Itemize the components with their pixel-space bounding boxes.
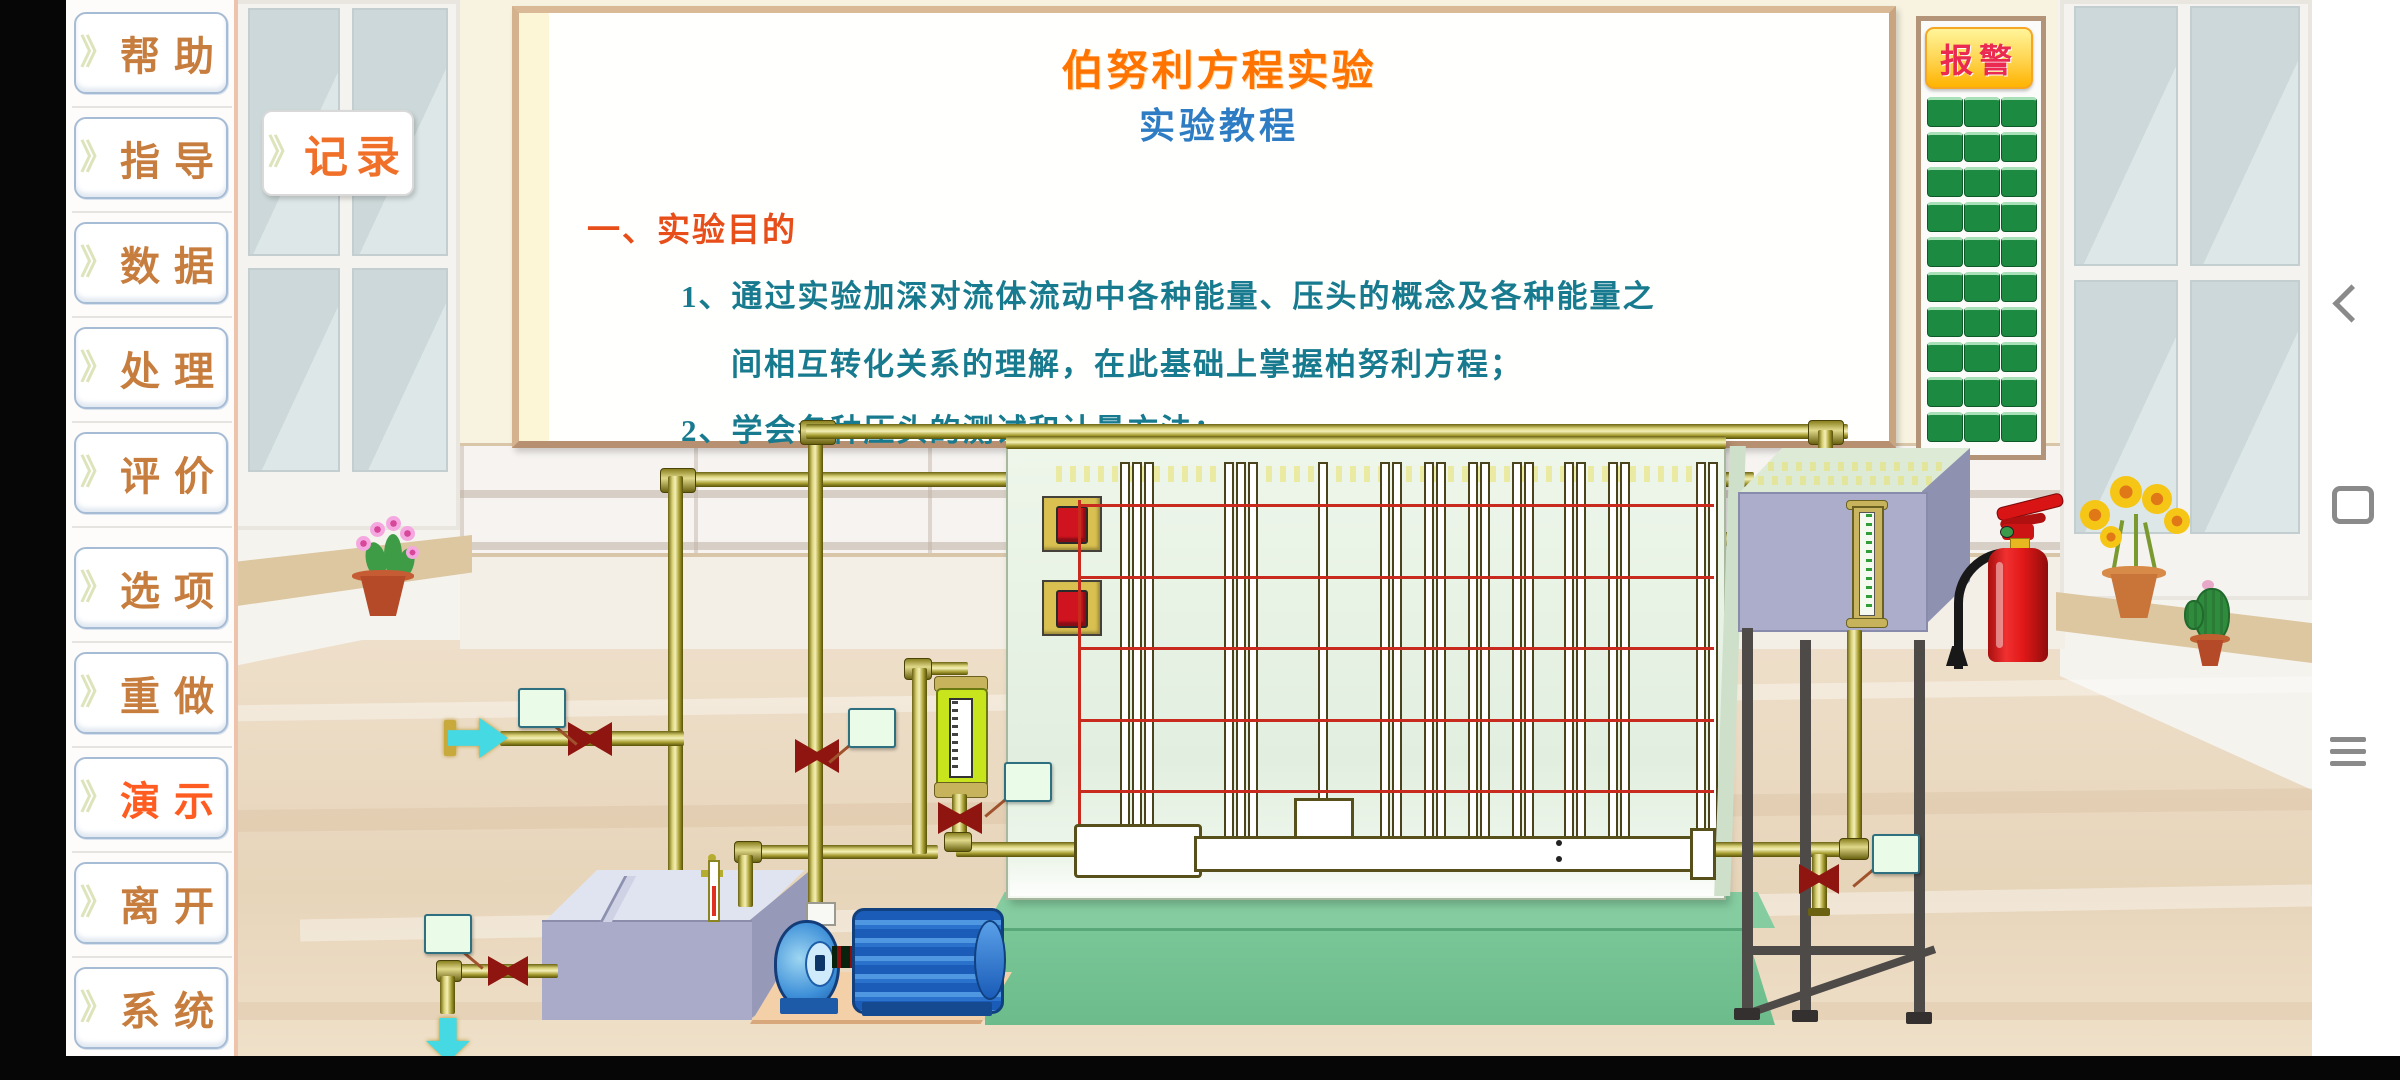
manometer-tube bbox=[1512, 462, 1522, 844]
whiteboard-margin bbox=[519, 13, 549, 441]
whiteboard: 伯努利方程实验 实验教程 一、实验目的 1、通过实验加深对流体流动中各种能量、压… bbox=[512, 6, 1896, 448]
manometer-tube bbox=[1120, 462, 1130, 844]
manometer-tube bbox=[1576, 462, 1586, 844]
menu-icon[interactable] bbox=[2330, 730, 2366, 773]
manometer-tube bbox=[1392, 462, 1402, 844]
chevron-icon: 》 bbox=[80, 141, 114, 175]
experiment-title: 伯努利方程实验 bbox=[549, 37, 1889, 98]
stand-leg bbox=[1742, 628, 1753, 1016]
manometer-tube bbox=[1436, 462, 1446, 844]
alarm-grid-button[interactable] bbox=[2001, 377, 2037, 407]
chevron-icon: 》 bbox=[80, 456, 114, 490]
objective-line: 1、通过实验加深对流体流动中各种能量、压头的概念及各种能量之 bbox=[681, 271, 1656, 316]
tooltip-marker[interactable] bbox=[1872, 834, 1920, 874]
scale-line bbox=[1078, 790, 1714, 793]
alarm-grid-button[interactable] bbox=[2001, 132, 2037, 162]
stand-foot bbox=[1792, 1010, 1818, 1022]
motor-feet bbox=[862, 1002, 992, 1016]
return-dip-pipe bbox=[738, 855, 753, 907]
left-window bbox=[234, 0, 460, 530]
sidebar-item-label: 离开 bbox=[120, 874, 228, 932]
test-section-outlet-pipe bbox=[1706, 842, 1856, 857]
sidebar-item-label: 数据 bbox=[120, 234, 228, 292]
rotameter-loop-pipe bbox=[912, 668, 927, 854]
alarm-grid-button[interactable] bbox=[1927, 412, 1963, 442]
window-pane bbox=[2190, 6, 2300, 266]
manometer-tube bbox=[1480, 462, 1490, 844]
pedestal-base bbox=[985, 928, 1775, 1025]
sidebar-item-label: 重做 bbox=[120, 664, 228, 722]
sidebar-item-data[interactable]: 》数据 bbox=[74, 222, 228, 304]
alarm-grid-button[interactable] bbox=[1927, 97, 1963, 127]
stand-leg bbox=[1914, 640, 1925, 1020]
scale-line bbox=[1078, 719, 1714, 722]
pump-foot bbox=[780, 998, 838, 1014]
sidebar-item-label: 系统 bbox=[120, 979, 228, 1037]
drain-down-pipe bbox=[440, 976, 455, 1014]
rotameter bbox=[936, 688, 988, 788]
sidebar-item-help[interactable]: 》帮助 bbox=[74, 12, 228, 94]
flow-in-arrow[interactable] bbox=[444, 716, 508, 760]
chevron-icon: 》 bbox=[80, 351, 114, 385]
home-icon[interactable] bbox=[2332, 486, 2374, 524]
manometer-tube bbox=[1318, 462, 1328, 844]
screen-edge-bottom bbox=[0, 1056, 2400, 1080]
tooltip-marker[interactable] bbox=[424, 914, 472, 954]
stand-crossbar bbox=[1742, 946, 1925, 955]
objective-line: 间相互转化关系的理解，在此基础上掌握柏努利方程； bbox=[731, 339, 1523, 384]
overflow-riser-pipe bbox=[668, 476, 683, 896]
alarm-grid-button[interactable] bbox=[1964, 167, 2000, 197]
manometer-tube bbox=[1248, 462, 1258, 844]
screen-edge-left bbox=[0, 0, 66, 1080]
chevron-icon: 》 bbox=[80, 571, 114, 605]
alarm-grid-button[interactable] bbox=[2001, 202, 2037, 232]
pipe-elbow bbox=[1839, 838, 1869, 860]
venturi-tube bbox=[1194, 836, 1714, 872]
scale-line bbox=[1078, 647, 1714, 650]
alarm-grid-button[interactable] bbox=[1964, 237, 2000, 267]
chevron-icon: 》 bbox=[268, 136, 302, 170]
manometer-tube bbox=[1468, 462, 1478, 844]
pipe-elbow bbox=[944, 832, 972, 852]
sidebar: 》帮助》指导》数据》处理》评价》选项》重做》演示》离开》系统 bbox=[66, 0, 238, 1056]
app-screen: 伯努利方程实验 实验教程 一、实验目的 1、通过实验加深对流体流动中各种能量、压… bbox=[0, 0, 2400, 1080]
stand-leg bbox=[1800, 640, 1811, 1018]
extinguisher-gauge bbox=[2000, 526, 2014, 538]
drain-spout bbox=[1808, 908, 1830, 916]
chevron-icon: 》 bbox=[80, 36, 114, 70]
sidebar-item-label: 帮助 bbox=[120, 24, 228, 82]
window-pane bbox=[352, 268, 448, 472]
venturi-tap bbox=[1556, 840, 1562, 846]
sidebar-item-process[interactable]: 》处理 bbox=[74, 327, 228, 409]
alarm-grid-button[interactable] bbox=[2001, 412, 2037, 442]
alarm-grid-button[interactable] bbox=[1927, 307, 1963, 337]
sidebar-item-label: 处理 bbox=[120, 339, 228, 397]
alarm-grid-button[interactable] bbox=[1927, 377, 1963, 407]
alarm-grid-button[interactable] bbox=[1964, 307, 2000, 337]
stand-foot bbox=[1734, 1008, 1760, 1020]
back-icon[interactable] bbox=[2332, 284, 2370, 322]
thermometer bbox=[700, 852, 726, 922]
alarm-grid-button[interactable] bbox=[2001, 97, 2037, 127]
sidebar-item-system[interactable]: 》系统 bbox=[74, 967, 228, 1049]
sidebar-item-label: 评价 bbox=[120, 444, 228, 502]
yellow-flower-pot bbox=[2076, 470, 2196, 620]
manometer-tube bbox=[1696, 462, 1706, 844]
venturi-chamber bbox=[1074, 824, 1202, 878]
sidebar-item-label: 演示 bbox=[120, 769, 228, 827]
tooltip-marker[interactable] bbox=[518, 688, 566, 728]
alarm-grid-button[interactable] bbox=[1927, 237, 1963, 267]
stand-foot bbox=[1906, 1012, 1932, 1024]
alarm-grid-button[interactable] bbox=[1964, 97, 2000, 127]
manometer-tube bbox=[1708, 462, 1718, 844]
manometer-tube bbox=[1524, 462, 1534, 844]
scale-line bbox=[1078, 504, 1714, 507]
alarm-panel: 报警 bbox=[1916, 16, 2046, 460]
venturi-tap bbox=[1556, 856, 1562, 862]
sidebar-item-redo[interactable]: 》重做 bbox=[74, 652, 228, 734]
pump-discharge-pipe bbox=[808, 430, 823, 918]
manometer-tube bbox=[1608, 462, 1618, 844]
scale-line bbox=[1078, 576, 1714, 579]
gauge-cap bbox=[1846, 618, 1888, 628]
record-label: 记录 bbox=[304, 121, 408, 185]
alarm-grid bbox=[1921, 21, 2041, 455]
tooltip-marker[interactable] bbox=[848, 708, 896, 748]
record-button[interactable]: 》 记录 bbox=[262, 110, 414, 196]
level-gauge bbox=[1852, 506, 1884, 624]
elevated-tank bbox=[1738, 492, 1928, 632]
centrifugal-pump bbox=[774, 920, 840, 1010]
cactus-pot bbox=[2182, 578, 2234, 668]
sidebar-item-demo[interactable]: 》演示 bbox=[74, 757, 228, 839]
sidebar-item-leave[interactable]: 》离开 bbox=[74, 862, 228, 944]
alarm-grid-button[interactable] bbox=[1964, 342, 2000, 372]
window-pane bbox=[2190, 280, 2300, 534]
section-heading: 一、实验目的 bbox=[587, 203, 797, 251]
sidebar-item-label: 选项 bbox=[120, 559, 228, 617]
alarm-grid-button[interactable] bbox=[1927, 342, 1963, 372]
alarm-grid-button[interactable] bbox=[1927, 132, 1963, 162]
shaft-coupling bbox=[832, 946, 852, 968]
chevron-icon: 》 bbox=[80, 781, 114, 815]
fire-extinguisher bbox=[1940, 490, 2070, 670]
system-nav-bar bbox=[2312, 0, 2400, 1056]
pink-flower-pot bbox=[344, 508, 424, 620]
water-surface-hatch bbox=[1758, 476, 1950, 485]
chevron-icon: 》 bbox=[80, 676, 114, 710]
tooltip-marker[interactable] bbox=[1004, 762, 1052, 802]
alarm-grid-button[interactable] bbox=[1927, 272, 1963, 302]
alarm-grid-button[interactable] bbox=[1964, 377, 2000, 407]
return-pipe bbox=[742, 845, 938, 859]
alarm-grid-button[interactable] bbox=[1964, 132, 2000, 162]
manometer-tube bbox=[1564, 462, 1574, 844]
water-surface-hatch bbox=[1768, 462, 1948, 471]
alarm-grid-button[interactable] bbox=[2001, 342, 2037, 372]
venturi-end-flange bbox=[1690, 828, 1716, 880]
manometer-tube bbox=[1380, 462, 1390, 844]
manometer-tube bbox=[1144, 462, 1154, 844]
chevron-icon: 》 bbox=[80, 991, 114, 1025]
sump-tank bbox=[542, 920, 752, 1020]
chevron-icon: 》 bbox=[80, 246, 114, 280]
alarm-grid-button[interactable] bbox=[1927, 167, 1963, 197]
alarm-grid-button[interactable] bbox=[1927, 202, 1963, 232]
manometer-tube bbox=[1224, 462, 1234, 844]
sidebar-item-guide[interactable]: 》指导 bbox=[74, 117, 228, 199]
alarm-grid-button[interactable] bbox=[1964, 202, 2000, 232]
alarm-grid-button[interactable] bbox=[2001, 167, 2037, 197]
window-pane bbox=[248, 268, 340, 472]
chevron-icon: 》 bbox=[80, 886, 114, 920]
alarm-grid-button[interactable] bbox=[1964, 412, 2000, 442]
window-pane bbox=[2074, 6, 2178, 266]
motor-endcap bbox=[974, 920, 1006, 1000]
alarm-grid-button[interactable] bbox=[1964, 272, 2000, 302]
sidebar-item-evaluate[interactable]: 》评价 bbox=[74, 432, 228, 514]
manometer-tube bbox=[1132, 462, 1142, 844]
experiment-subtitle: 实验教程 bbox=[549, 97, 1889, 149]
alarm-grid-button[interactable] bbox=[2001, 237, 2037, 267]
sidebar-item-options[interactable]: 》选项 bbox=[74, 547, 228, 629]
elevated-tank-outlet-pipe bbox=[1847, 630, 1862, 856]
manometer-tube bbox=[1424, 462, 1434, 844]
manometer-tube bbox=[1236, 462, 1246, 844]
sidebar-item-label: 指导 bbox=[120, 129, 228, 187]
alarm-grid-button[interactable] bbox=[2001, 272, 2037, 302]
manometer-tube bbox=[1620, 462, 1630, 844]
test-section-feed-pipe bbox=[956, 842, 1082, 857]
alarm-grid-button[interactable] bbox=[2001, 307, 2037, 337]
